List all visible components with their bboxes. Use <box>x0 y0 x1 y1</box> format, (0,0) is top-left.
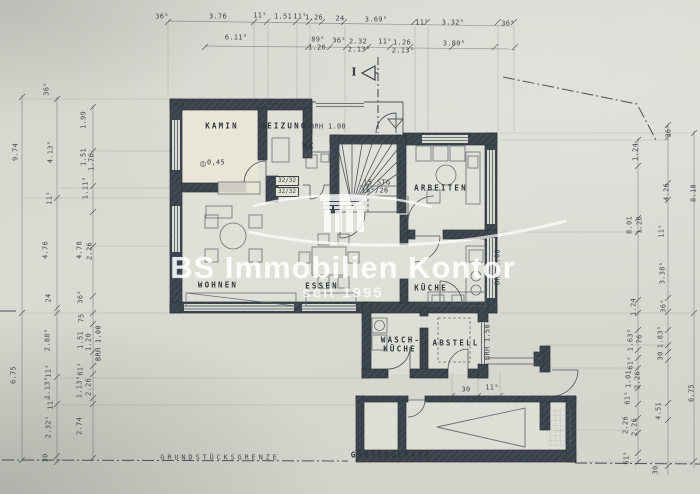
annotation-brh-left: BRH 1.00 <box>96 325 103 361</box>
annotation-lintel-1: 32/32 <box>275 176 299 186</box>
dim-left-17: 4.78 <box>77 241 84 259</box>
dim-left-16: 1.11⁵ <box>83 177 90 200</box>
dim-right-6: 11⁵ <box>659 224 666 238</box>
dim-top2-1: 89⁵ <box>311 37 325 44</box>
room-label-wohnen: WOHNEN <box>198 281 238 289</box>
dim-right-0: 36⁵ <box>666 124 673 138</box>
room-label-essen: ESSEN <box>305 282 339 290</box>
annotation-lintel-2: 32/32 <box>275 187 299 197</box>
room-label-heizung: HEIZUNG <box>260 122 307 130</box>
dim-top-5: 1.26 <box>305 15 323 22</box>
dim-left-15: 1.76 <box>89 153 96 171</box>
dim-top-1: 3.76 <box>209 14 227 21</box>
room-label-wasch-kueche-line1: WASCH- <box>381 336 421 344</box>
dim-top-8: 11⁵ <box>415 20 429 27</box>
annotation-brh-right: BRH 1.00 <box>495 249 502 285</box>
dim-left-23: 61⁵ <box>78 362 85 376</box>
dim-left-26: 2.74 <box>77 417 84 435</box>
annotation-section-mark: I <box>351 67 356 78</box>
dim-top-10: 36⁵ <box>501 21 515 28</box>
dim-top-2: 11⁵ <box>253 13 267 20</box>
dim-left-0: 9.74 <box>13 143 20 161</box>
floor-plan-photo: KAMINHEIZUNGWCARBEITENWOHNENESSENKÜCHEWA… <box>0 0 700 494</box>
dim-top2-6: 11⁵ <box>378 39 392 46</box>
dim-top2-4: 2.32 <box>349 39 367 46</box>
dim-right-4: 8.01 <box>627 216 634 234</box>
dim-left-10: 11⁵ <box>48 396 55 410</box>
annotation-brh-annex: BRH 1.50 <box>485 324 492 360</box>
room-label-wc: WC <box>302 142 315 150</box>
dim-top2-7: 1.26 <box>393 40 411 47</box>
annotation-boundary-label: GRUNDSTÜCKSGRENZE <box>160 455 279 462</box>
dim-right-10: 1.63⁵ <box>628 329 635 352</box>
dim-top2-9: 3.80⁵ <box>443 41 466 48</box>
dim-right-22: 61⁵ <box>624 451 631 465</box>
dim-left-6: 24 <box>46 293 53 302</box>
dim-left-24: 1.13⁵ <box>77 376 84 399</box>
dim-left-18: 2.26 <box>87 242 94 260</box>
dim-top-6: 24 <box>335 16 344 23</box>
dim-left-7: 2.88⁵ <box>45 329 52 352</box>
dim-left-20: 75 <box>79 313 86 322</box>
dim-small-1: 11⁵ <box>485 385 499 392</box>
dim-right-8: 1.24 <box>631 298 638 316</box>
dim-right-21: 2.26 <box>632 418 639 436</box>
room-label-arbeiten: ARBEITEN <box>414 184 468 192</box>
room-label-wasch-kueche-line2: KÜCHE <box>383 345 417 353</box>
dim-right-3: 8.18 <box>691 184 698 202</box>
dim-top-3: 1.51 <box>274 14 292 21</box>
dim-right-15: 1.01 <box>626 370 633 388</box>
dim-right-23: 30 <box>653 465 660 474</box>
dim-right-16: 2.26 <box>635 371 642 389</box>
annotation-level-mark: 0,45 <box>207 160 225 167</box>
dim-right-2: 4.26 <box>664 183 671 201</box>
dim-left-5: 4.76 <box>43 241 50 259</box>
dim-right-7: 3.38⁵ <box>660 262 667 285</box>
dim-right-9: 36⁵ <box>661 299 668 313</box>
dim-left-25: 2.26 <box>86 378 93 396</box>
section-line <box>362 57 378 133</box>
dim-right-17: 6.75 <box>689 384 696 402</box>
dim-left-22: 1.20 <box>86 333 93 351</box>
dim-top2-3: 36⁵ <box>332 38 346 45</box>
dim-left-4: 11⁵ <box>47 191 54 205</box>
dim-top-9: 3.32⁵ <box>442 20 465 27</box>
room-label-abstell: ABSTELL <box>432 339 479 347</box>
dim-left-2: 36⁵ <box>44 82 51 96</box>
dim-right-18: 61⁵ <box>625 391 632 405</box>
dim-left-14: 1.51 <box>81 148 88 166</box>
floor-plan-drawing <box>0 0 700 494</box>
dim-left-13: 1.99 <box>81 111 88 129</box>
dim-left-1: 6.75 <box>11 366 18 384</box>
dim-right-19: 4.51 <box>656 402 663 420</box>
dim-left-3: 4.13⁵ <box>48 141 55 164</box>
dim-left-12: 30 <box>43 453 50 462</box>
annotation-stair-ratio: 18⁸/26 <box>362 188 389 195</box>
dim-small-0: 30 <box>461 387 470 394</box>
dim-top-0: 36⁵ <box>155 14 169 21</box>
dim-right-12: 1.83⁵ <box>658 326 665 349</box>
room-label-gartengeraete: GARTENGERÄTE <box>351 451 432 459</box>
dim-right-5: 1.26 <box>637 216 644 234</box>
dim-top2-2: 1.26 <box>308 45 326 52</box>
dim-left-11: 2.32⁵ <box>46 416 53 439</box>
annotation-stair-count: 15 STG <box>364 180 391 187</box>
room-label-kamin: KAMIN <box>205 122 239 130</box>
dim-right-11: 76 <box>637 334 644 343</box>
dim-left-19: 36⁵ <box>78 290 85 304</box>
dim-right-13: 30 <box>658 351 665 360</box>
room-label-kueche: KÜCHE <box>414 284 448 292</box>
dim-top2-0: 6.11⁵ <box>225 35 248 42</box>
dim-left-21: 1.51 <box>78 331 85 349</box>
annotation-brh-top: BRH 1.00 <box>310 124 346 131</box>
dim-right-1: 1.24 <box>633 143 640 161</box>
dim-right-14: 61⁵ <box>628 356 635 370</box>
dim-right-20: 2.26 <box>623 416 630 434</box>
dim-top-7: 3.69⁵ <box>365 17 388 24</box>
dim-top2-5: 2.13⁵ <box>348 47 371 54</box>
dim-top2-8: 2.13⁵ <box>392 48 415 55</box>
